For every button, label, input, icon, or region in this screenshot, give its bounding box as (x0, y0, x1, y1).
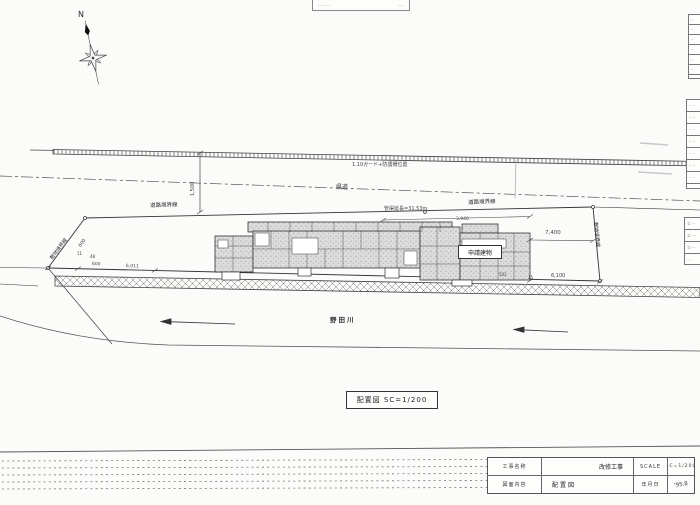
dim-6100: 6,100 (551, 274, 565, 279)
table-row: ·· (689, 75, 700, 79)
table-row: ·· · (687, 100, 700, 112)
title-block-scale-value: SC=1/200 (668, 458, 694, 476)
table-row: ·· (689, 35, 700, 45)
compass-rose-icon (71, 18, 112, 87)
pencil-marks (638, 143, 672, 174)
title-block-sheet-value: 配置図 (542, 476, 634, 493)
right-table-top: ·· ·· ·· ·· ·· ·· ·· (688, 14, 700, 79)
table-row: ·· ·· (687, 160, 700, 172)
table-row: ·· (689, 55, 700, 65)
title-block-scale-label: SCALE (634, 458, 668, 476)
legend-row: ① ··· (685, 218, 700, 230)
legend-row: ③ ··· (685, 242, 700, 254)
road-boundary-label-left: 道路境界線 (150, 203, 178, 209)
dim-1500: 1,500 (191, 182, 196, 196)
survey-tick (515, 160, 516, 198)
title-block-project-label: 工事名称 (488, 458, 542, 476)
road-centerline (0, 176, 700, 201)
legend-row: ··· (685, 254, 700, 265)
flow-arrows (161, 319, 568, 333)
table-row: ·· ·· (687, 136, 700, 148)
drawing-sheet: N ·········· ····· 1.10ガード+防護柵位置 県道 1,50… (0, 0, 700, 505)
dim-1500-line (197, 151, 203, 214)
table-row: ·· (689, 65, 700, 75)
title-block-date-value: '95.8 (667, 474, 695, 494)
title-block-date-label: 年月日 (634, 476, 668, 493)
caption-text: 配置図 SC=1/200 (357, 395, 428, 405)
paved-road-strip (55, 276, 700, 298)
building-label-box: 申請建物 (458, 245, 502, 259)
top-title-box-text-left: ·········· (318, 3, 331, 8)
table-row: ·· (687, 184, 700, 189)
table-row: ·· ·· (687, 112, 700, 124)
right-table-middle: ·· · ·· ·· ·· · ·· ·· ·· · ·· ·· ·· · ·· (686, 99, 700, 189)
title-block-project-value: 改修工事 (542, 458, 634, 476)
dim-48: 48 (90, 255, 95, 259)
dim-15: 15 (528, 276, 533, 280)
road-boundary-label-right: 道路境界線 (468, 200, 496, 206)
dim-11: 11 (77, 252, 82, 256)
legend-row: ② ··· (685, 230, 700, 242)
table-row: ·· · (687, 148, 700, 160)
building-label: 申請建物 (468, 248, 492, 257)
table-row: ·· (689, 25, 700, 35)
dim-502: 502 (499, 273, 507, 277)
road-center-label: 県道 (336, 185, 348, 191)
table-row: ·· (689, 15, 700, 25)
dim-6011: 6,011 (126, 265, 139, 270)
water-lines (2, 460, 487, 490)
dim-3940: 3,940 (456, 218, 469, 223)
site-plan-linework (0, 0, 700, 505)
title-block: 工事名称 改修工事 SCALE SC=1/200 図面内容 配置図 年月日 '9… (487, 457, 695, 494)
pipe-length-label: 管渠延長=31.53m (384, 207, 427, 212)
table-row: ·· · (687, 172, 700, 184)
right-legend-box: ① ··· ② ··· ③ ··· ··· (684, 217, 700, 265)
top-title-box: ·········· ····· (312, 0, 410, 11)
table-row: ·· · (687, 124, 700, 136)
dim-7400: 7,400 (545, 231, 561, 237)
title-block-sheet-label: 図面内容 (488, 476, 542, 493)
fence-label: 1.10ガード+防護柵位置 (352, 163, 407, 168)
top-title-box-text-right: ····· (398, 3, 404, 8)
table-row: ·· (689, 45, 700, 55)
caption-box: 配置図 SC=1/200 (346, 391, 438, 409)
dim-600-bottom: 600 (92, 263, 101, 268)
river-bank-lines (0, 316, 700, 452)
river-label: 野田川 (330, 317, 356, 324)
north-label: N (78, 11, 84, 19)
